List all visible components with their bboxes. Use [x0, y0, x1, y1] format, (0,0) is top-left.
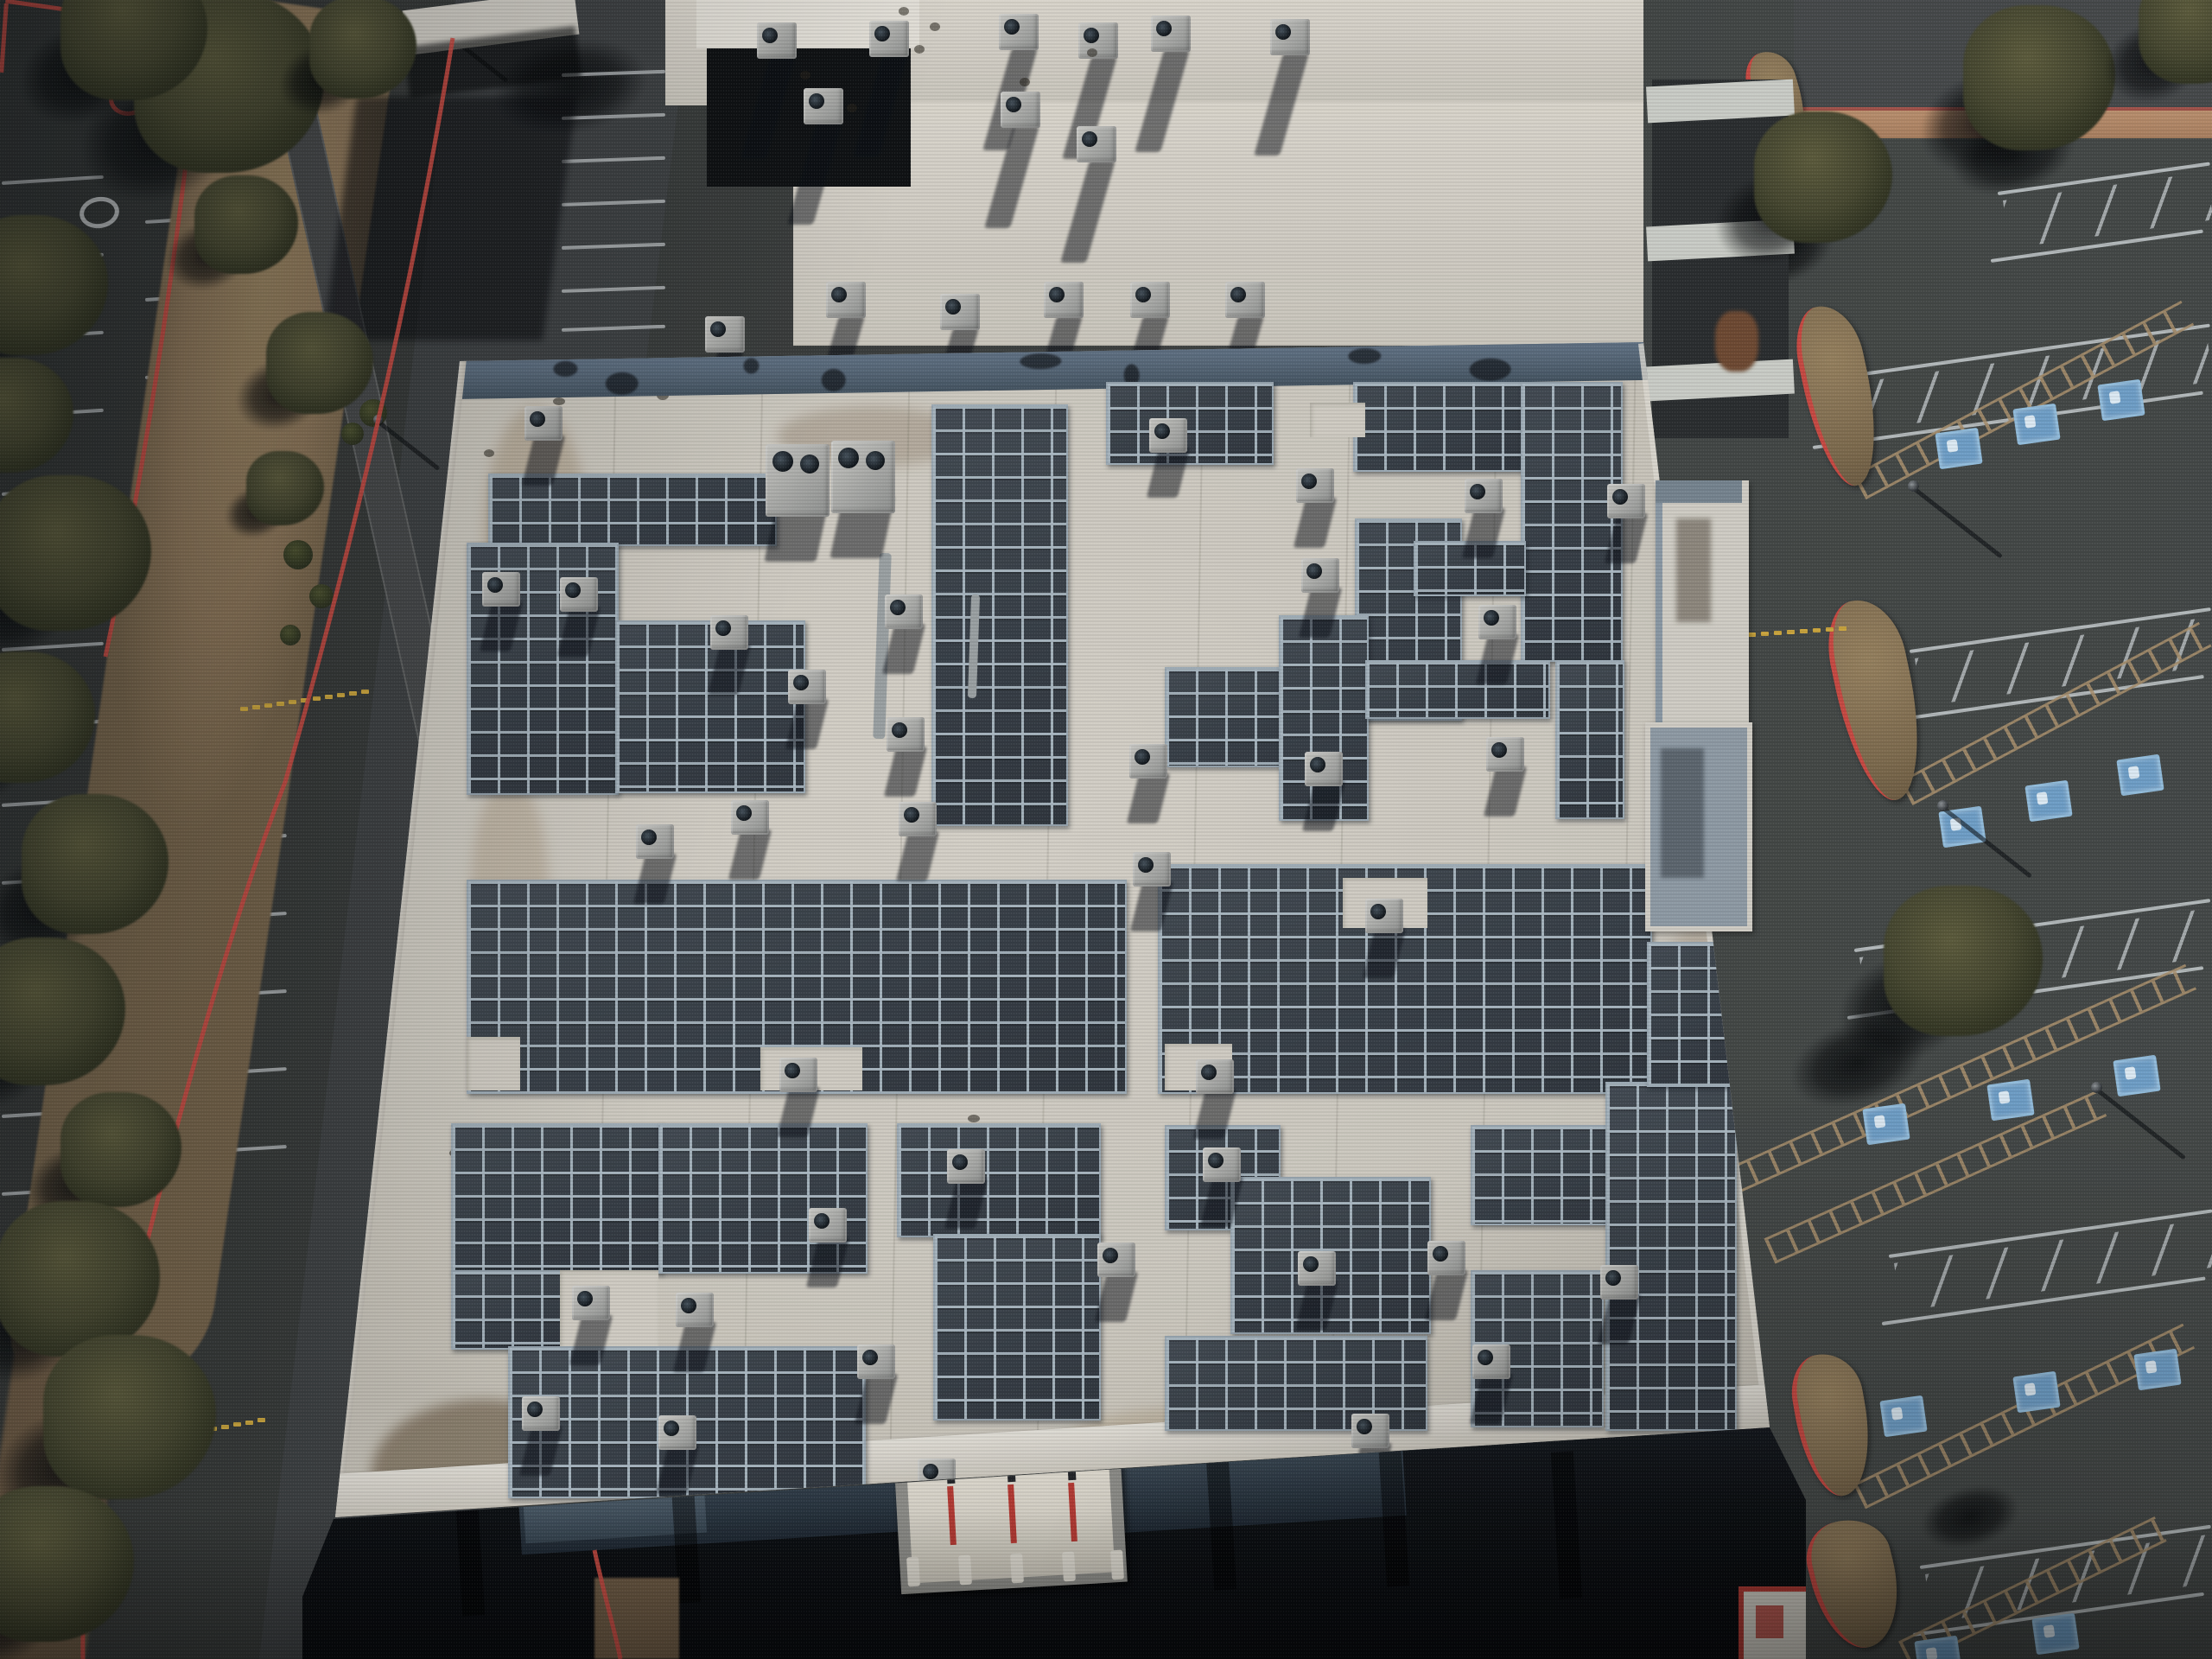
hvac-fan-icon [1470, 484, 1485, 499]
hvac-fan-icon [527, 1402, 543, 1417]
solar-array-block [1106, 382, 1274, 465]
wheelchair-glyph [1999, 1090, 2011, 1104]
yellow-hatch-dash [1774, 631, 1782, 635]
hvac-fan-icon [1433, 1246, 1448, 1262]
roof-stain-dot [800, 71, 810, 79]
tree-canopy [1754, 111, 1892, 243]
wheelchair-glyph [2024, 1382, 2037, 1396]
hvac-fan-icon [831, 287, 847, 302]
handicap-stall-marking [2113, 1055, 2160, 1097]
hvac-unit [1133, 852, 1171, 887]
east-bumpout-stain [1676, 518, 1711, 622]
hvac-unit [1196, 1059, 1234, 1094]
hvac-unit [524, 406, 563, 441]
rooftop-hvac-unit [869, 21, 909, 57]
hvac-fan-icon [1103, 1248, 1118, 1263]
hvac-fan-icon [1605, 1270, 1621, 1286]
hvac-unit [779, 1058, 817, 1092]
handicap-stall-marking [2133, 1349, 2181, 1391]
hvac-unit [1301, 558, 1339, 593]
tree-canopy [0, 652, 95, 783]
hvac-fan-icon [1084, 28, 1099, 43]
parapet-tar-blob [1469, 358, 1510, 381]
entrance-bollard [906, 1557, 920, 1587]
solar-array-block [1647, 942, 1737, 1087]
roof-stain-dot [847, 104, 857, 112]
hvac-fan-icon [681, 1298, 696, 1313]
rooftop-hvac-unit [804, 88, 843, 124]
wheelchair-glyph [2145, 1360, 2158, 1374]
hvac-fan-icon [1357, 1419, 1372, 1434]
rooftop-hvac-unit [1077, 126, 1116, 162]
light-pole-shadow [2094, 1088, 2186, 1160]
handicap-stall-marking [1879, 1395, 1927, 1438]
dock-walkway-band [1646, 79, 1795, 124]
solar-array-block [1353, 382, 1526, 472]
hvac-unit [676, 1293, 714, 1327]
tree-canopy [0, 358, 73, 473]
hvac-fan-icon [1306, 563, 1322, 579]
yellow-hatch-dash [252, 705, 260, 709]
handicap-stall-marking [2024, 780, 2072, 823]
hvac-fan-icon [715, 620, 731, 636]
hvac-unit [1600, 1265, 1638, 1300]
hvac-unit [1351, 1414, 1389, 1448]
hvac-unit-shadow [1425, 1270, 1468, 1320]
hvac-unit [1607, 484, 1645, 518]
handicap-stall-marking [2116, 754, 2164, 797]
yellow-hatch-dash [221, 1425, 229, 1429]
hvac-fan-icon [1230, 287, 1246, 302]
hvac-fan-icon [809, 93, 824, 109]
handicap-stall-marking [2097, 379, 2145, 422]
roof-stain-dot [930, 22, 940, 31]
hvac-fan-icon [487, 577, 503, 593]
yellow-hatch-dash [1826, 627, 1834, 632]
solar-array-block [451, 1270, 563, 1350]
hvac-unit [1296, 468, 1334, 503]
hvac-unit-shadow [1294, 498, 1337, 548]
corner-dirt-patch [594, 1578, 679, 1659]
hvac-fan-icon [1138, 857, 1154, 873]
solar-array-gap [1310, 403, 1365, 437]
hvac-fan-icon [1004, 19, 1020, 35]
hvac-unit [1427, 1241, 1465, 1275]
cart-corral-sign-inner [1756, 1605, 1783, 1638]
entrance-bollard [958, 1555, 972, 1586]
hvac-unit [560, 577, 598, 612]
rtu-large-unit [831, 441, 895, 513]
wheelchair-glyph [1947, 439, 1959, 453]
hvac-fan-icon [1154, 423, 1170, 439]
wheelchair-glyph [2044, 1624, 2056, 1638]
rooftop-hvac-unit [1044, 282, 1084, 318]
bush [309, 584, 334, 608]
light-pole [373, 415, 383, 424]
solar-array-gap [467, 1037, 520, 1090]
hvac-fan-icon [1491, 742, 1507, 758]
hvac-fan-icon [814, 1213, 829, 1229]
hvac-unit [1149, 418, 1187, 453]
hvac-fan-icon [577, 1291, 593, 1306]
yellow-hatch-dash [1839, 626, 1847, 631]
yellow-hatch-dash [1787, 630, 1795, 634]
hvac-unit [887, 717, 925, 752]
facade-column-shadow [1551, 1451, 1582, 1599]
hvac-unit-shadow [884, 747, 927, 797]
yellow-hatch-dash [361, 690, 369, 694]
rtu-large-unit [766, 444, 829, 517]
hvac-unit [572, 1286, 610, 1320]
rear-roof-surface [793, 102, 1643, 346]
yellow-hatch-dash [233, 1422, 241, 1427]
hvac-fan-icon [1612, 489, 1628, 505]
roof-tar-dot [968, 1115, 980, 1122]
hvac-fan-icon [904, 807, 919, 823]
hvac-unit [1465, 479, 1503, 513]
hvac-unit-shadow [1127, 773, 1170, 823]
roof-stain-dot [899, 7, 909, 16]
hvac-fan-icon [710, 321, 726, 337]
solar-array-block [1365, 660, 1550, 719]
hvac-fan-icon [793, 675, 809, 690]
rooftop-hvac-unit [940, 294, 980, 330]
yellow-hatch-dash [289, 700, 296, 704]
hvac-unit [809, 1208, 847, 1243]
yellow-hatch-dash [1800, 629, 1808, 633]
roof-stain-dot [914, 45, 925, 54]
curbed-planter-island [1798, 1510, 1911, 1656]
hvac-fan-icon [1135, 749, 1150, 765]
yellow-hatch-dash [1748, 632, 1756, 637]
roof-tar-dot [484, 449, 494, 457]
tree-canopy [60, 1092, 181, 1207]
hvac-unit [1097, 1243, 1135, 1277]
hvac-fan-icon [866, 451, 885, 470]
cart-corral-sign [1738, 1586, 1811, 1659]
solar-array-block [1605, 1082, 1737, 1431]
entrance-bollard [1010, 1554, 1024, 1584]
wheelchair-glyph [2128, 766, 2140, 779]
roof-tar-dot [553, 397, 565, 405]
hvac-unit [731, 800, 769, 835]
rooftop-hvac-unit [999, 14, 1039, 50]
roof-stain-dot [1087, 48, 1097, 57]
wheelchair-glyph [2024, 415, 2037, 429]
rooftop-hvac-unit [1225, 282, 1265, 318]
hvac-fan-icon [923, 1464, 938, 1479]
hvac-fan-icon [664, 1421, 679, 1436]
tree-canopy [43, 1335, 216, 1499]
wheelchair-glyph [2109, 391, 2121, 404]
handicap-stall-marking [2012, 404, 2060, 446]
hvac-unit [1472, 1344, 1510, 1379]
hvac-unit [885, 594, 923, 629]
tree-canopy [1884, 886, 2043, 1037]
hvac-unit [658, 1415, 696, 1450]
hvac-fan-icon [862, 1350, 878, 1365]
hvac-fan-icon [530, 411, 545, 427]
hvac-fan-icon [1484, 610, 1499, 626]
wheelchair-glyph [1926, 1647, 1938, 1659]
hvac-unit [1478, 605, 1516, 639]
hvac-fan-icon [1275, 24, 1291, 40]
light-pole [1937, 800, 1948, 811]
hvac-unit [1305, 752, 1343, 786]
rooftop-hvac-unit [1130, 282, 1170, 318]
hvac-fan-icon [772, 451, 793, 472]
hvac-unit-shadow [1095, 1272, 1138, 1322]
east-bumpout-upper-band [1656, 480, 1742, 503]
yellow-hatch-dash [301, 698, 308, 702]
hvac-unit [482, 572, 520, 607]
dock-rust-patch [1715, 311, 1758, 372]
hvac-fan-icon [945, 299, 961, 315]
solar-array-block [1555, 660, 1624, 819]
hvac-unit [947, 1149, 985, 1184]
yellow-hatch-dash [349, 691, 357, 696]
yellow-hatch-dash [313, 696, 321, 701]
hvac-fan-icon [838, 448, 859, 468]
parapet-tar-blob [1348, 348, 1381, 365]
light-pole [1908, 480, 1919, 492]
hvac-unit [788, 670, 826, 704]
hvac-unit [1298, 1251, 1336, 1286]
hvac-fan-icon [1049, 287, 1065, 302]
hvac-fan-icon [1135, 287, 1151, 302]
hvac-fan-icon [874, 26, 890, 41]
entrance-bollard [1110, 1550, 1124, 1580]
hvac-fan-icon [785, 1063, 800, 1078]
aerial-photo-scene [0, 0, 2212, 1659]
hvac-unit [1365, 899, 1403, 933]
yellow-hatch-dash [1761, 632, 1769, 636]
solar-array-block [451, 1123, 662, 1274]
hvac-fan-icon [1208, 1153, 1224, 1168]
wheelchair-glyph [1874, 1115, 1886, 1128]
hvac-unit [1129, 744, 1167, 779]
hvac-fan-icon [952, 1154, 968, 1170]
parapet-tar-blob [743, 358, 759, 373]
rooftop-hvac-unit [1270, 19, 1310, 55]
hvac-unit [636, 824, 674, 859]
main-roof [335, 342, 1771, 1519]
yellow-hatch-dash [264, 703, 272, 708]
hvac-unit [522, 1396, 560, 1431]
hvac-fan-icon [1301, 474, 1317, 489]
yellow-hatch-dash [337, 693, 345, 697]
hvac-fan-icon [1370, 904, 1386, 919]
parapet-tar-blob [821, 369, 845, 391]
handicap-stall-marking [1862, 1103, 1910, 1146]
hvac-fan-icon [1201, 1065, 1217, 1080]
hvac-unit [857, 1344, 895, 1379]
yellow-hatch-dash [276, 702, 284, 706]
light-pole [2091, 1082, 2102, 1093]
bush [283, 540, 313, 569]
hvac-fan-icon [641, 829, 657, 845]
hvac-unit-shadow [896, 831, 939, 881]
yellow-hatch-dash [245, 1421, 253, 1425]
solar-array-block [1521, 382, 1623, 662]
handicap-stall-marking [1986, 1079, 2034, 1122]
entrance-bollard [1062, 1552, 1076, 1582]
rooftop-hvac-unit [1001, 92, 1040, 128]
yellow-hatch-dash [325, 695, 333, 699]
handicap-stall-marking [2012, 1371, 2060, 1414]
bush [341, 423, 364, 445]
yellow-hatch-dash [1813, 628, 1821, 632]
solar-array-block [897, 1123, 1101, 1237]
wheelchair-glyph [2125, 1066, 2137, 1080]
hvac-unit-shadow [728, 829, 772, 880]
rear-building-cast-shadow [322, 97, 577, 340]
tree-canopy [309, 0, 416, 99]
solar-array-block [933, 1234, 1101, 1421]
light-pole-shadow [1911, 486, 2003, 559]
rooftop-hvac-unit [705, 316, 745, 353]
handicap-stall-marking [2031, 1613, 2079, 1656]
facade-column-shadow [1378, 1439, 1409, 1586]
hvac-unit [1203, 1147, 1241, 1182]
roof-stain-dot [1020, 78, 1030, 86]
parapet-tar-blob [1020, 353, 1061, 370]
east-bumpout-lower-shadow [1661, 748, 1704, 878]
rooftop-hvac-unit [1151, 16, 1191, 52]
hvac-fan-icon [1303, 1256, 1319, 1272]
wheelchair-glyph [2037, 791, 2049, 805]
hvac-fan-icon [736, 805, 752, 821]
hvac-fan-icon [1478, 1350, 1493, 1365]
yellow-hatch-dash [257, 1418, 265, 1422]
hvac-unit [899, 802, 937, 836]
wheelchair-glyph [1891, 1407, 1904, 1421]
bush [280, 625, 301, 645]
hvac-fan-icon [890, 600, 906, 615]
rooftop-hvac-unit [757, 22, 797, 59]
hvac-fan-icon [565, 582, 581, 598]
hvac-fan-icon [892, 722, 907, 738]
hvac-fan-icon [1006, 97, 1021, 112]
hvac-fan-icon [1082, 131, 1097, 147]
hvac-fan-icon [762, 28, 778, 43]
hvac-unit [1486, 737, 1524, 772]
handicap-stall-marking [1935, 428, 1982, 470]
parapet-tar-blob [606, 372, 639, 396]
solar-array-block [931, 404, 1068, 826]
hvac-fan-icon [800, 454, 819, 474]
yellow-hatch-dash [240, 707, 248, 711]
rooftop-hvac-unit [1078, 22, 1118, 59]
hvac-fan-icon [1310, 757, 1325, 772]
hvac-unit [710, 615, 748, 650]
rooftop-hvac-unit [826, 282, 866, 318]
parapet-tar-blob [553, 361, 577, 377]
hvac-fan-icon [1156, 21, 1172, 36]
